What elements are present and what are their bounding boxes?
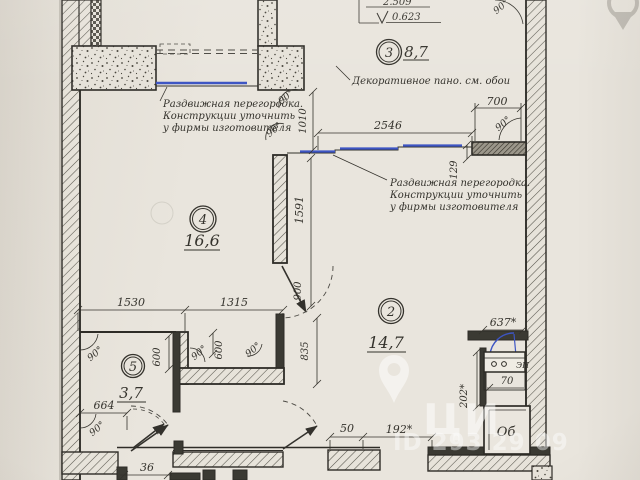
level-mark-icon — [377, 11, 388, 23]
jamb-stub-3 — [203, 470, 215, 480]
dashed-box — [160, 44, 190, 54]
notes-layer: 2.509 0.623 Декоративное пано. см. обои … — [160, 0, 530, 213]
room3-number: 3 — [385, 46, 393, 61]
wall-bottom-mid2 — [328, 450, 380, 470]
angle-90-r5-bottom: 90° — [87, 419, 107, 438]
decor-note: Декоративное пано. см. обои — [351, 76, 510, 87]
level-upper: 2.509 — [382, 0, 412, 8]
partition-note2-line3: у фирмы изготовителя — [389, 202, 518, 213]
furniture-circle — [151, 202, 173, 224]
dim-129: 129 — [449, 160, 460, 180]
wall-right-outer — [526, 0, 546, 458]
partition-note1-line2: Конструкции уточнить — [162, 111, 295, 122]
angle-90-notch-right: 90° — [243, 340, 263, 359]
wall-notch-horizontal — [176, 368, 284, 384]
wall-concrete-stub — [258, 0, 277, 46]
wall-bottom-mid — [173, 452, 283, 467]
room5-area: 3,7 — [119, 384, 143, 402]
floor-plan-photo: ЭП Об — [0, 0, 640, 480]
dim-2546: 2546 — [373, 119, 402, 132]
dim-835: 835 — [300, 341, 311, 360]
dim-36: 36 — [140, 461, 154, 474]
jamb-stub-2 — [174, 441, 183, 454]
partition-note1-line1: Раздвижная перегородка. — [162, 99, 303, 110]
angle-90-r5-top: 90° — [85, 344, 105, 363]
room5-number: 5 — [129, 360, 137, 375]
dim-50: 50 — [340, 422, 354, 435]
jamb-stub-4 — [233, 470, 247, 480]
wall-topleft-insulation — [91, 0, 101, 46]
room2-number: 2 — [386, 305, 395, 320]
dim-70: 70 — [501, 376, 514, 387]
dim-900: 900 — [293, 281, 304, 301]
dim-1591: 1591 — [293, 196, 306, 224]
dim-700: 700 — [487, 95, 508, 108]
room3-area: 8,7 — [404, 43, 428, 61]
dim-600-notch: 600 — [214, 340, 225, 360]
wall-concrete-right — [258, 46, 304, 90]
dim-1530: 1530 — [117, 296, 145, 309]
wall-concrete-left — [72, 46, 156, 90]
door-leaf-corridor-1 — [133, 424, 164, 448]
dim-664: 664 — [94, 399, 115, 412]
room4-area: 16,6 — [184, 231, 220, 250]
dim-1010: 1010 — [298, 108, 309, 134]
dim-1315: 1315 — [220, 296, 248, 309]
partition-note1-line3: у фирмы изготовителя — [162, 123, 291, 134]
wall-step-lintel — [472, 142, 526, 155]
angle-90-under700: 90° — [493, 114, 513, 133]
room4-number: 4 — [198, 213, 207, 228]
door-arc-r2 — [282, 266, 333, 318]
door-leaf-corridor-2 — [283, 426, 317, 449]
dim-600-r5: 600 — [152, 347, 163, 367]
watermark-id: ID 293 29 09 — [393, 430, 569, 456]
floor-plan-svg: ЭП Об — [0, 0, 640, 480]
partition-note2-line1: Раздвижная перегородка. — [389, 178, 530, 189]
partition-note2-line2: Конструкции уточнить — [389, 190, 522, 201]
angle-90-topright: 90° — [491, 0, 511, 17]
room2-area: 14,7 — [368, 333, 404, 352]
jamb-stub-5 — [170, 473, 200, 480]
level-lower: 0.623 — [392, 12, 421, 23]
wall-bottom-speckle — [532, 466, 552, 480]
door-arc-corridor-2 — [283, 401, 317, 426]
wall-stub-r2-left — [276, 314, 284, 370]
wall-bottom-left — [62, 452, 118, 474]
wall-interior-r4-r2 — [273, 155, 287, 263]
partition-note2-leader — [333, 155, 387, 180]
watermark-pin-icon — [379, 355, 409, 403]
dim-637: 637* — [490, 316, 517, 329]
wall-topleft-hatch — [79, 0, 91, 46]
watermark-pin-icon-top — [609, 0, 637, 30]
angle-90-notch-left: 90° — [189, 343, 209, 362]
wall-r5-right — [173, 332, 180, 412]
decor-note-leader — [336, 66, 350, 80]
watermark-layer: ЦИ ID 293 29 09 — [379, 0, 637, 456]
stove-label: ЭП — [516, 361, 530, 370]
